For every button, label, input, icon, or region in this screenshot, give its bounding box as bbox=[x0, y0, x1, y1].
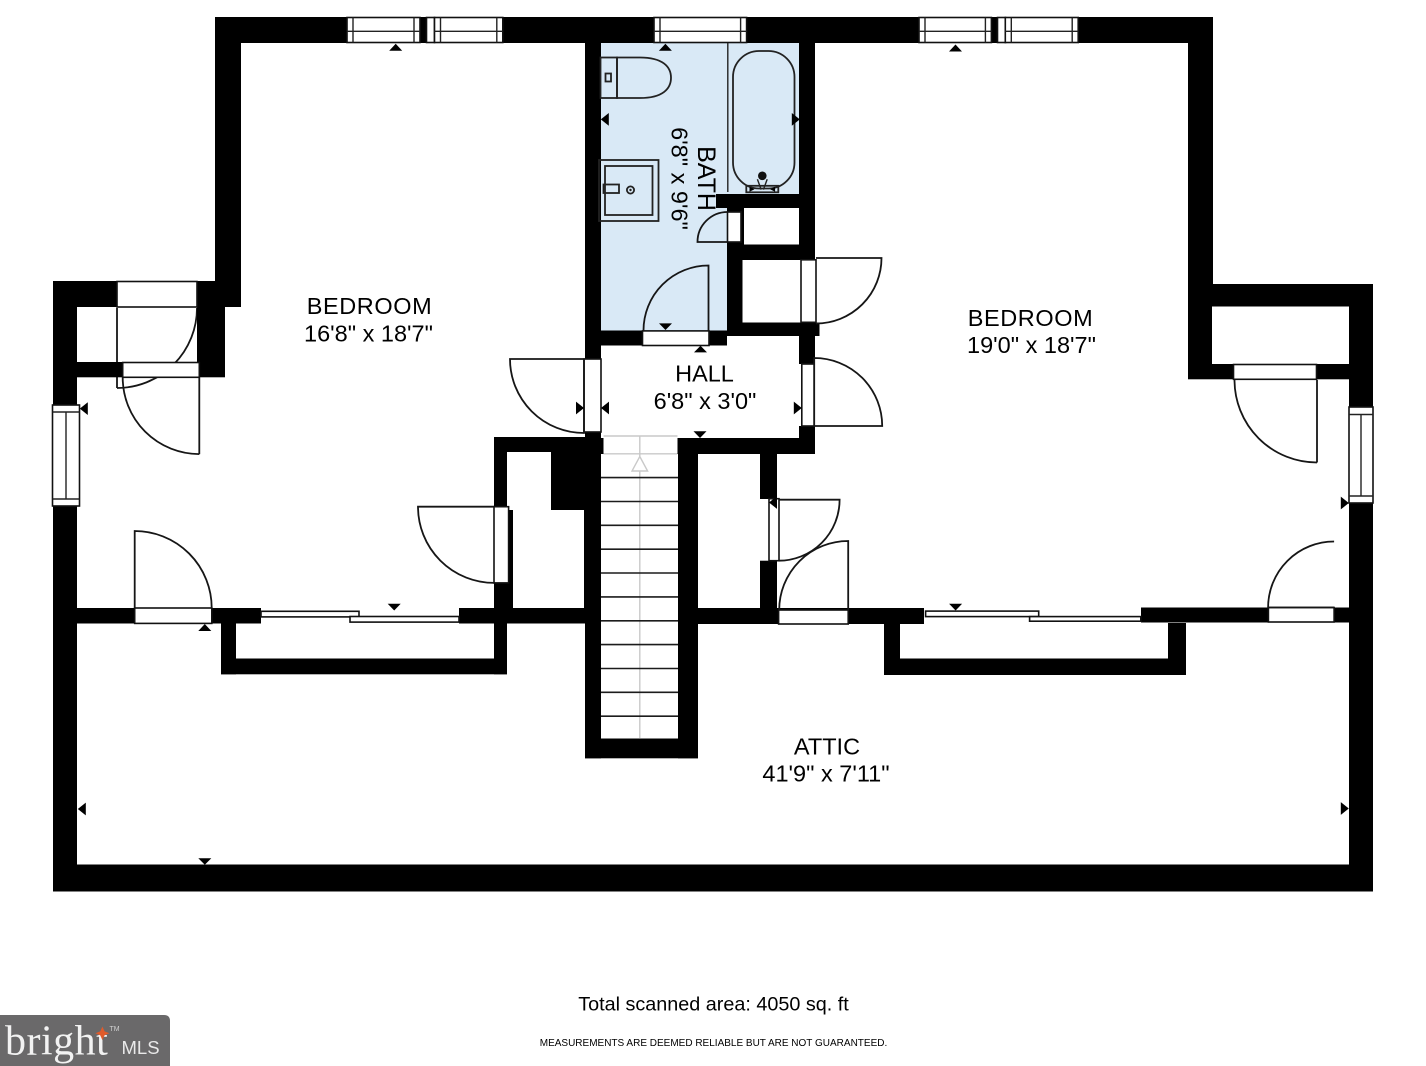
svg-text:BEDROOM: BEDROOM bbox=[968, 305, 1094, 331]
svg-text:HALL: HALL bbox=[675, 360, 734, 386]
svg-text:bright: bright bbox=[5, 1019, 108, 1065]
svg-text:6'8" x 3'0": 6'8" x 3'0" bbox=[654, 388, 757, 414]
svg-text:MLS: MLS bbox=[122, 1037, 160, 1058]
svg-text:MEASUREMENTS ARE DEEMED RELIAB: MEASUREMENTS ARE DEEMED RELIABLE BUT ARE… bbox=[540, 1038, 888, 1049]
svg-text:19'0" x 18'7": 19'0" x 18'7" bbox=[967, 332, 1096, 358]
svg-text:6'8" x 9'6": 6'8" x 9'6" bbox=[667, 127, 693, 230]
svg-text:Total scanned area: 4050 sq. f: Total scanned area: 4050 sq. ft bbox=[578, 993, 849, 1015]
svg-text:TM: TM bbox=[110, 1026, 120, 1033]
svg-text:16'8" x 18'7": 16'8" x 18'7" bbox=[304, 321, 433, 347]
svg-text:41'9" x 7'11": 41'9" x 7'11" bbox=[762, 761, 889, 787]
svg-text:BEDROOM: BEDROOM bbox=[307, 293, 433, 319]
svg-text:BATH: BATH bbox=[692, 146, 720, 211]
svg-text:ATTIC: ATTIC bbox=[794, 734, 860, 760]
